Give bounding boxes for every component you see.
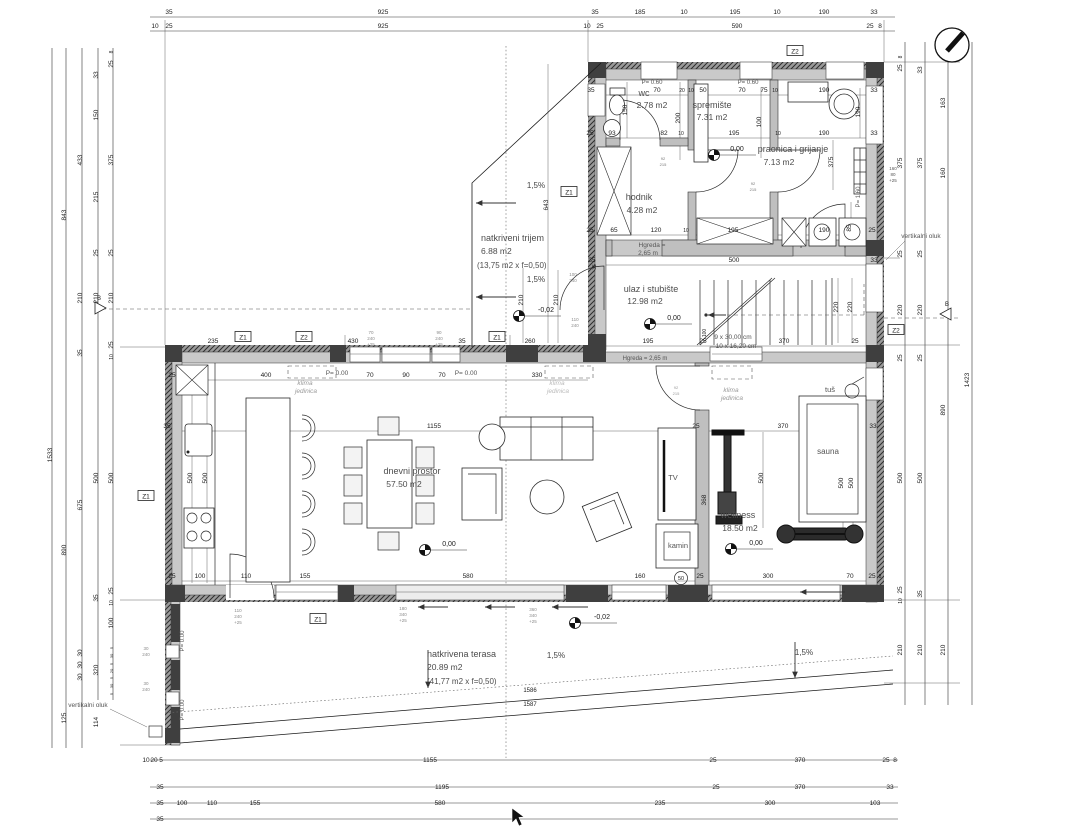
dim-label: 5 — [159, 757, 163, 764]
dim-label: 33 — [870, 130, 878, 137]
dim-label: 195 — [729, 130, 740, 137]
dim-label: 30 — [77, 673, 84, 681]
dim-label: 35 — [592, 264, 598, 270]
dim-label: 25 — [897, 586, 904, 594]
dim-label: 675 — [77, 499, 84, 510]
dim-label: +25 — [399, 618, 407, 623]
dim-label: 240 — [435, 336, 443, 341]
dim-label: 190 — [855, 106, 862, 117]
level-marker: -0,02 — [570, 614, 618, 629]
floor-plan-drawing: 3592535185101951019033102592510255902581… — [0, 0, 1084, 826]
dim-label: 215 — [660, 162, 667, 167]
level-value: 0,00 — [667, 315, 681, 322]
dim-label: 25 — [868, 573, 876, 580]
dim-label: +25 — [435, 342, 443, 347]
dim-label: 30 — [109, 683, 114, 688]
dim-label: 75 — [760, 87, 768, 94]
dim-label: 370 — [779, 338, 790, 345]
stove — [184, 508, 214, 548]
dim-label: 150 — [93, 109, 100, 120]
dim-label: 155 — [300, 573, 311, 580]
toilet-tank — [610, 88, 625, 95]
slope-label: 1,5% — [527, 181, 545, 190]
dim-label: 35 — [587, 87, 595, 94]
dim-label: 70 — [438, 372, 446, 379]
dim-label: 25 — [108, 60, 115, 68]
fixture-label-klima: klima — [723, 387, 739, 394]
mouse-cursor — [512, 808, 524, 826]
dim-label: 1195 — [435, 784, 449, 791]
dim-label: 110 — [571, 317, 579, 322]
dim-label: 100 — [177, 800, 188, 807]
fixture-label-klima: klima — [297, 380, 313, 387]
dim-label: 163 — [940, 97, 947, 108]
dim-label: 100 — [108, 617, 115, 628]
dim-label: 33 — [917, 66, 924, 74]
room-area-trijem: 6.88 m2 — [481, 246, 512, 256]
dim-label: 235 — [655, 800, 666, 807]
gutter-leaders — [110, 241, 905, 727]
fixture-label-klima: klima — [549, 380, 565, 387]
dim-label: 240 — [569, 278, 577, 283]
dim-label: 210 — [553, 294, 560, 305]
dim-label: 925 — [378, 23, 389, 30]
dim-label: 20 — [109, 668, 114, 673]
dim-label: 500 — [917, 472, 924, 483]
section-tag-z1: Z1 — [310, 614, 326, 624]
dim-label: 100 — [569, 272, 577, 277]
section-tag-z1: Z1 — [235, 332, 251, 342]
dim-label: 890 — [61, 544, 68, 555]
dim-label: 10 — [583, 23, 591, 30]
section-tag-z2: Z2 — [888, 325, 904, 335]
room-label-ulaz: ulaz i stubište — [624, 284, 679, 294]
dim-label: 375 — [917, 157, 924, 168]
slope-label: 1,5% — [547, 651, 565, 660]
dim-label: 33 — [93, 71, 100, 79]
dim-label: 370 — [795, 757, 806, 764]
dim-label: 215 — [750, 187, 757, 192]
dim-label: 890 — [940, 404, 947, 415]
dim-label: 10 — [688, 88, 694, 94]
dim-label: 35 — [917, 590, 924, 598]
section-tag-label: Z1 — [142, 494, 150, 501]
parapet-label: P= 0.00 — [180, 630, 186, 652]
dim-label: 110 — [234, 608, 242, 613]
section-tag-label: Z1 — [493, 335, 501, 342]
section-marker-label: B — [945, 302, 949, 308]
room-area-wc: 2.78 m2 — [637, 100, 668, 110]
dim-label: 35 — [588, 257, 596, 264]
dim-label: 10 — [678, 131, 684, 137]
dim-label: 93 — [608, 130, 616, 137]
dim-label: 500 — [108, 472, 115, 483]
dim-label: +25 — [234, 620, 242, 625]
dim-label: 35 — [156, 816, 164, 823]
dim-label: 375 — [897, 157, 904, 168]
dim-label: 240 — [142, 687, 150, 692]
room-label-terasa: natkrivena terasa — [427, 649, 496, 659]
shelf — [694, 84, 708, 162]
dim-label: +25 — [529, 619, 537, 624]
dim-label: 843 — [61, 209, 68, 220]
section-marker-b: B — [95, 296, 106, 314]
dim-label: 70 — [653, 87, 661, 94]
dim-label: 1586 — [523, 688, 537, 694]
laundry-cabinet — [782, 218, 806, 246]
dim-label: 500 — [838, 477, 845, 488]
section-tag-label: Z1 — [239, 335, 247, 342]
dim-label: 10 — [773, 9, 781, 16]
dim-label: 180 — [399, 606, 407, 611]
dim-label: 100 — [756, 116, 763, 127]
dim-label: 643 — [543, 199, 550, 210]
direction-arrow — [418, 604, 448, 610]
dim-label: 35 — [163, 423, 171, 430]
dim-label: 25 — [108, 587, 115, 595]
dim-label: 10 — [109, 600, 115, 606]
dim-label: 433 — [77, 154, 84, 165]
room-area-dnevni: 57.50 m2 — [386, 479, 422, 489]
dim-label: 160 — [940, 167, 947, 178]
dim-label: 35 — [156, 784, 164, 791]
dim-label: 25 — [897, 250, 904, 258]
dim-label: 210 — [518, 294, 525, 305]
section-marker-label: B — [97, 296, 101, 302]
dim-label: 8 — [878, 23, 882, 30]
level-value: -0,02 — [594, 614, 610, 621]
dim-label: 114 — [93, 716, 100, 727]
dim-label: 925 — [378, 9, 389, 16]
dim-label: 30 — [143, 646, 149, 651]
dim-label: 220 — [917, 304, 924, 315]
dim-label: 360 — [529, 607, 537, 612]
fixture-label-klima: jedinica — [294, 388, 317, 395]
dim-label: +25 — [367, 342, 375, 347]
bar-stools — [302, 415, 315, 555]
dim-label: 210 — [917, 644, 924, 655]
dim-label: 35 — [77, 349, 84, 357]
dim-label: 10 — [109, 354, 115, 360]
dim-label: 235 — [208, 338, 219, 345]
dim-label: 50 — [699, 87, 707, 94]
fixture-label-kamin: kamin — [668, 541, 688, 550]
dim-label: 25 — [897, 354, 904, 362]
room-area-hodnik: 4.28 m2 — [627, 205, 658, 215]
dim-label: 25 — [596, 23, 604, 30]
dim-label: 1423 — [964, 372, 971, 387]
stairs-note: 9 x 30,00 cm — [714, 334, 751, 341]
level-marker: -0,02 — [514, 307, 562, 322]
level-value: 0,00 — [730, 146, 744, 153]
gutter-label: vertikalni oluk — [68, 702, 108, 709]
parapet-label: P= 0.00 — [326, 370, 349, 377]
section-tag-label: Z2 — [791, 49, 799, 56]
room-area-spremiste: 7.31 m2 — [697, 112, 728, 122]
direction-arrow — [552, 604, 588, 610]
dim-label: 25 — [851, 338, 859, 345]
dim-label: 330 — [532, 372, 543, 379]
dim-label: 190 — [819, 9, 830, 16]
dim-label: 25 — [108, 249, 115, 257]
level-marker: 0,00 — [420, 541, 468, 556]
dim-label: 30 — [77, 649, 84, 657]
room-label-spremiste: spremište — [692, 100, 731, 110]
dim-label: 10 — [775, 131, 781, 137]
column-tag: 50 — [678, 576, 684, 582]
parapet-label: P= 0.60 — [738, 80, 760, 86]
dim-label: 25 — [165, 23, 173, 30]
dim-label: 215 — [93, 191, 100, 202]
dim-label: 220 — [833, 301, 840, 312]
dim-label: 1533 — [47, 447, 54, 462]
dim-label: 70 — [846, 573, 854, 580]
dim-label: 195 — [643, 338, 654, 345]
dim-label: 30 — [143, 681, 149, 686]
dim-label: 25 — [93, 249, 100, 257]
dim-label: 25 — [108, 341, 115, 349]
section-tag-label: Z1 — [314, 617, 322, 624]
dim-label: 10 — [151, 23, 159, 30]
dim-label: 400 — [261, 372, 272, 379]
dim-label: 8 — [879, 574, 882, 580]
dim-label: 25 — [168, 372, 176, 379]
dim-label: 70 — [366, 372, 374, 379]
dim-label: 80 — [890, 172, 896, 177]
dim-label: 70 — [738, 87, 746, 94]
kitchen-island — [246, 398, 290, 582]
dim-label: 160 — [889, 166, 897, 171]
parapet-label: P= 0.60 — [642, 80, 664, 86]
floor-plan-page: 3592535185101951019033102592510255902581… — [0, 0, 1084, 826]
dim-label: 195 — [728, 227, 739, 234]
room-label-praonica: praonica i grijanje — [758, 144, 829, 154]
terrace-lines — [165, 656, 893, 743]
dim-label: 10 — [683, 228, 689, 234]
dim-label: 200 — [675, 112, 682, 123]
dim-label: 500 — [93, 472, 100, 483]
armchair — [462, 468, 502, 520]
dim-label: 20 — [150, 757, 158, 764]
dim-label: 25 — [882, 757, 890, 764]
dim-label: 92 — [751, 181, 756, 186]
dim-label: 155 — [250, 800, 261, 807]
porch-outline — [472, 63, 601, 347]
dim-label: 35 — [93, 594, 100, 602]
dim-label: 25 — [699, 338, 707, 345]
section-marker-b: B — [940, 302, 951, 320]
fixture-label-klima: jedinica — [720, 395, 743, 402]
dim-label: 375 — [108, 154, 115, 165]
dim-label: 320 — [93, 664, 100, 675]
dim-label: 160 — [635, 573, 646, 580]
parapet-label: P= 0.00 — [180, 699, 186, 721]
level-value: 0,00 — [749, 540, 763, 547]
dim-label: 20 — [679, 88, 685, 94]
dim-label: 260 — [525, 338, 536, 345]
direction-arrow — [476, 200, 516, 206]
dim-label: 590 — [732, 23, 743, 30]
dim-label: 240 — [367, 336, 375, 341]
dim-label: 190 — [819, 227, 830, 234]
dim-label: 33 — [869, 423, 877, 430]
dim-label: 190 — [819, 87, 830, 94]
level-marker: 0,00 — [709, 146, 757, 161]
dim-label: 85 — [846, 224, 853, 232]
dim-label: 25 — [586, 227, 594, 234]
north-arrow-icon — [935, 28, 969, 62]
dim-label: 90 — [436, 330, 442, 335]
dim-label: 195 — [730, 9, 741, 16]
section-tag-label: Z2 — [300, 335, 308, 342]
dim-label: 103 — [870, 800, 881, 807]
dim-label: 33 — [870, 9, 878, 16]
dim-label: 92 — [661, 156, 666, 161]
dim-label: 100 — [702, 329, 708, 338]
dim-label: 500 — [758, 472, 765, 483]
sauna-box — [799, 396, 866, 522]
gutter-label: vertikalni oluk — [901, 233, 941, 240]
dim-label: 92 — [674, 385, 679, 390]
dim-label: 82 — [660, 130, 668, 137]
dim-label: 110 — [241, 573, 252, 580]
dim-label: 33 — [870, 87, 878, 94]
fridge-cabinet — [176, 365, 208, 395]
fixture-label-sauna: sauna — [817, 447, 839, 456]
dim-label: 240 — [571, 323, 579, 328]
dim-label: 370 — [778, 423, 789, 430]
room-label-wellness: wellness — [720, 510, 756, 520]
parapet-label: P= 1,60 — [856, 186, 862, 208]
dim-label: 10 — [772, 88, 778, 94]
dim-label: 500 — [897, 472, 904, 483]
dim-label: 500 — [848, 477, 855, 488]
level-marker: 0,00 — [726, 540, 774, 555]
section-tag-z2: Z2 — [296, 332, 312, 342]
side-table — [479, 424, 505, 450]
dim-label: 65 — [610, 227, 618, 234]
dim-label: 1155 — [423, 757, 437, 764]
section-tag-label: Z2 — [892, 328, 900, 335]
dim-label: 1155 — [427, 423, 441, 430]
dim-label: 70 — [368, 330, 374, 335]
dim-label: 30 — [77, 661, 84, 669]
level-value: -0,02 — [538, 307, 554, 314]
fixture-label-tus: tuš — [825, 385, 835, 394]
direction-arrow — [708, 312, 726, 318]
room-area-terasa: 20.89 m2 — [427, 662, 463, 672]
exercise-bench — [777, 525, 863, 543]
dim-label: 33 — [870, 257, 878, 264]
dim-label: 25 — [712, 784, 720, 791]
dim-label: 500 — [187, 472, 194, 483]
beam-height-label: Hgreda = — [639, 242, 666, 249]
direction-arrow — [485, 604, 515, 610]
dim-label: 25 — [586, 130, 594, 137]
dim-label: 25 — [692, 423, 700, 430]
dim-label: 210 — [77, 292, 84, 303]
section-tag-label: Z1 — [565, 190, 573, 197]
room-note-terasa: (41,77 m2 x f=0,50) — [427, 677, 497, 686]
dim-label: 500 — [202, 472, 209, 483]
dim-label: 33 — [886, 784, 894, 791]
dim-label: 10 — [680, 9, 688, 16]
dim-label: 8 — [109, 50, 115, 53]
slope-label: 1,5% — [795, 648, 813, 657]
vent-shaft — [597, 147, 631, 235]
dim-label: 25 — [917, 354, 924, 362]
dim-label: 370 — [795, 784, 806, 791]
dim-label: 215 — [673, 391, 680, 396]
stairs-note: 10 x 16,20 cm — [716, 343, 757, 350]
dim-label: 35 — [156, 800, 164, 807]
dim-label: 375 — [828, 156, 835, 167]
dim-label: 25 — [168, 573, 176, 580]
dim-label: 35 — [165, 9, 173, 16]
dim-label: 340 — [529, 613, 537, 618]
gutter-box — [149, 726, 162, 737]
shower — [845, 377, 864, 398]
dim-label: 220 — [847, 301, 854, 312]
dim-label: 10 — [898, 598, 904, 604]
room-label-hodnik: hodnik — [626, 192, 653, 202]
dim-label: 120 — [651, 227, 662, 234]
room-label-dnevni: dnevni prostor — [383, 466, 440, 476]
dim-label: 1587 — [523, 702, 537, 708]
dim-label: +25 — [889, 178, 897, 183]
ac-unit — [545, 366, 593, 378]
room-area-praonica: 7.13 m2 — [764, 157, 795, 167]
room-label-trijem: natkriveni trijem — [481, 233, 544, 243]
dim-label: 210 — [108, 292, 115, 303]
dim-label: 25 — [897, 64, 904, 72]
dim-label: 8 — [893, 757, 897, 764]
dim-label: 25 — [866, 23, 874, 30]
dim-label: 340 — [399, 612, 407, 617]
dim-label: 580 — [463, 573, 474, 580]
dim-label: 8 — [898, 55, 904, 58]
dim-label: 10 — [142, 757, 150, 764]
dim-label: 110 — [207, 800, 218, 807]
parapet-label: P= 0.00 — [455, 370, 478, 377]
section-tag-z1: Z1 — [138, 491, 154, 501]
sofa — [500, 417, 593, 460]
dim-label: 100 — [195, 573, 206, 580]
dim-label: 25 — [696, 573, 704, 580]
lounge-chair — [582, 492, 631, 541]
dim-label: 125 — [61, 712, 68, 723]
direction-arrow — [476, 294, 516, 300]
dim-label: 240 — [142, 652, 150, 657]
slope-label: 1,5% — [527, 275, 545, 284]
dim-label: 25 — [868, 227, 876, 234]
fixture-label-klima: jedinica — [546, 388, 569, 395]
dim-label: 35 — [591, 9, 599, 16]
fixture-label-tv: TV — [668, 473, 678, 482]
coffee-table — [530, 480, 564, 514]
dim-label: 150 — [622, 104, 629, 115]
room-note-trijem: (13,75 m2 x f=0,50) — [477, 261, 547, 270]
dim-label: 90 — [402, 372, 410, 379]
beam-height-label: 2,65 m — [638, 250, 658, 257]
section-tag-z2: Z2 — [787, 46, 803, 56]
dim-label: 30 — [109, 653, 114, 658]
room-label-wc: wc — [638, 88, 650, 98]
room-area-wellness: 18.50 m2 — [722, 523, 758, 533]
dim-label: 210 — [940, 644, 947, 655]
dim-label: 25 — [917, 250, 924, 258]
beam-height-label: Hgreda = 2,65 m — [623, 356, 668, 362]
